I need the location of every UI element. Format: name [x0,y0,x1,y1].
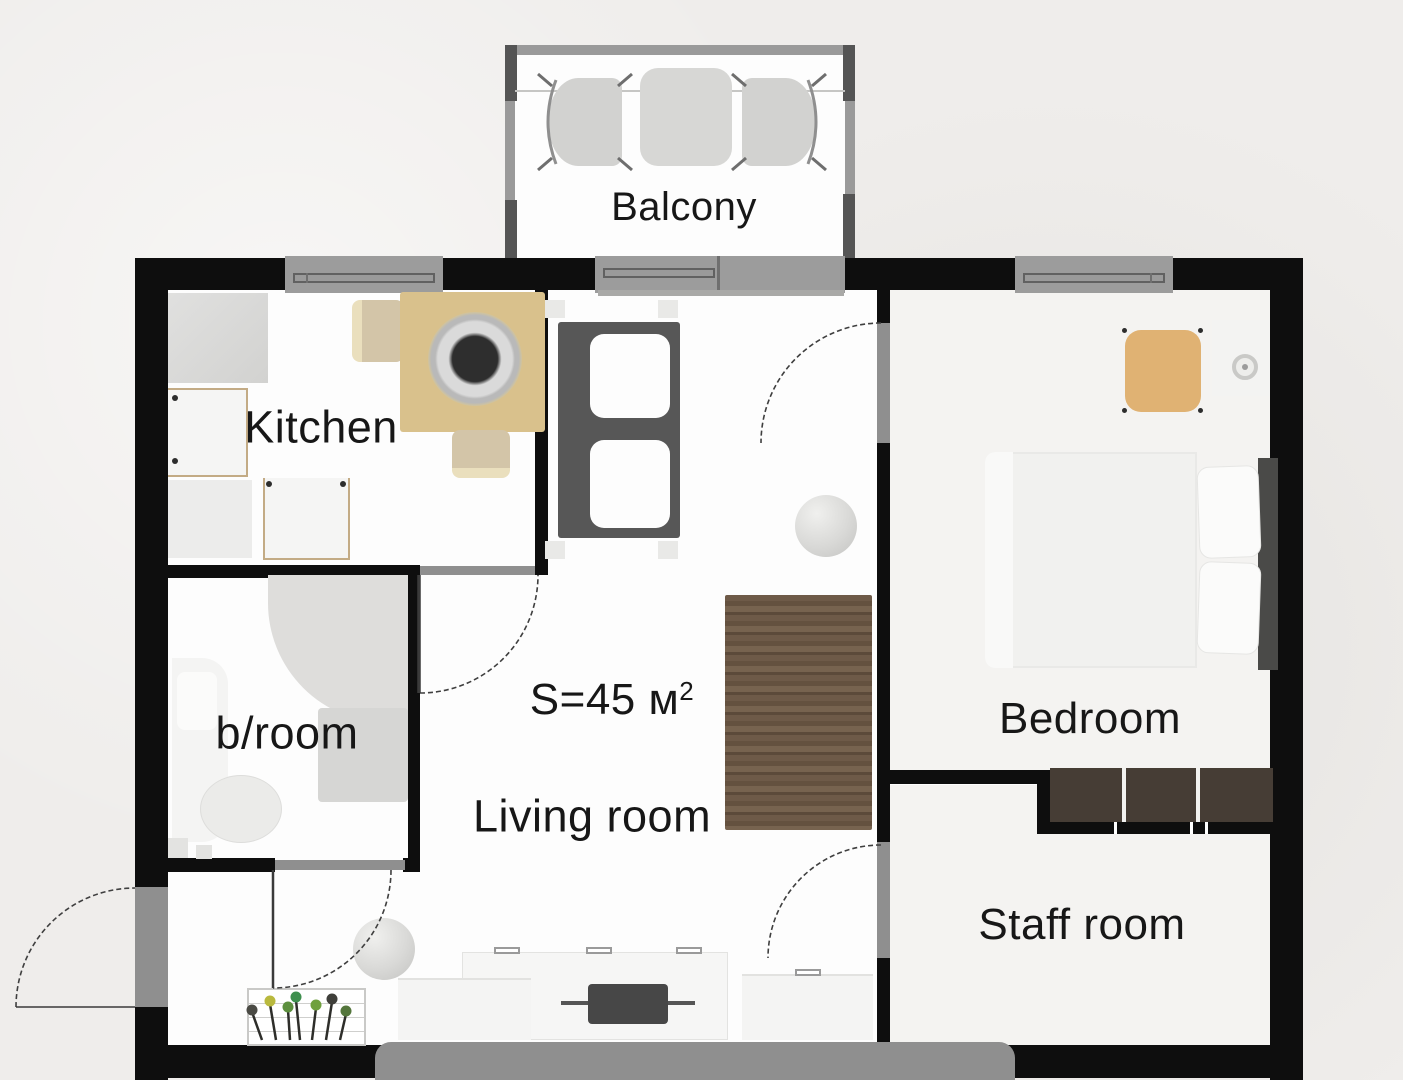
entry-door-arc [16,888,135,1007]
bedroom-label: Bedroom [999,697,1181,741]
balcony-chair-legs [538,74,826,170]
plants [247,992,352,1041]
floor-plan-canvas: Balcony Kitchen b/room S=45 м2 Living ro… [0,0,1403,1080]
bathroom-label: b/room [215,711,358,756]
living-room-label: Living room [473,794,711,839]
area-label-text: S=45 м [530,675,679,724]
plan-linework [0,0,1403,1080]
kitchen-label: Kitchen [244,405,398,450]
staff-door-arc [768,845,881,958]
bathroom-door-arc [273,870,391,988]
staff-room-label: Staff room [978,903,1185,947]
bedroom-door-arc [761,323,881,443]
kitchen-door-arc [420,575,538,693]
balcony-chair-backs [548,80,816,164]
area-label: S=45 м2 [530,678,694,722]
balcony-label: Balcony [611,187,757,227]
area-label-superscript: 2 [679,676,694,706]
